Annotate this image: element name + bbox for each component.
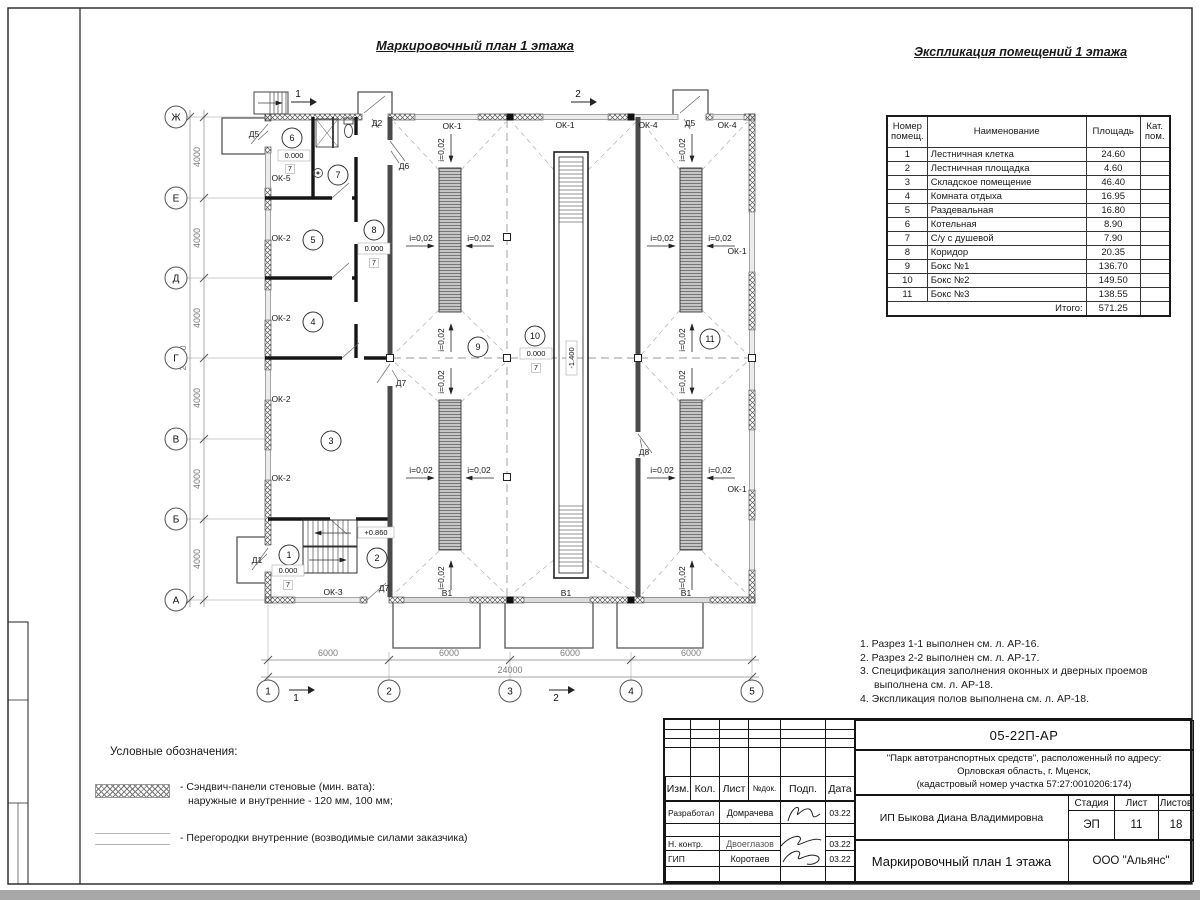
section-number: 2 xyxy=(575,89,581,100)
gate-mark: В1 xyxy=(442,588,453,598)
section-number: 1 xyxy=(295,89,301,100)
cell-num: 7 xyxy=(887,232,927,246)
block-walls xyxy=(390,117,638,597)
window-mark: ОК-1 xyxy=(555,120,574,130)
title-block: Изм. Кол. Лист №док. Подп. Дата Разработ… xyxy=(663,718,1192,884)
note-item: 2. Разрез 2-2 выполнен см. л. АР-17. xyxy=(860,652,1190,666)
door-mark: Д8 xyxy=(639,447,650,457)
cell-cat xyxy=(1140,148,1170,162)
room-number: 10 xyxy=(530,331,540,341)
name-developer: Домрачева xyxy=(719,801,781,824)
cell-name: Котельная xyxy=(927,218,1086,232)
door-mark: Д7 xyxy=(396,378,407,388)
room-number: 1 xyxy=(286,550,291,560)
col-header-name: Наименование xyxy=(927,116,1086,148)
cell-num: 8 xyxy=(887,246,927,260)
table-total-row: Итого: 571.25 xyxy=(887,302,1170,317)
col-list: Лист xyxy=(719,776,749,801)
sheet-header: Лист xyxy=(1114,795,1159,811)
table-row: 5Раздевальная16.80 xyxy=(887,204,1170,218)
total-label: Итого: xyxy=(887,302,1086,317)
empty-row xyxy=(719,823,781,837)
name-ncontrol: Двоеглазов xyxy=(719,836,781,851)
cell-cat xyxy=(1140,190,1170,204)
entrance-stair xyxy=(254,92,288,114)
axis-label: Е xyxy=(173,194,180,205)
floor-type-tag: 7 xyxy=(372,260,376,267)
cell-area: 20.35 xyxy=(1086,246,1140,260)
door-mark: Д2 xyxy=(372,118,383,128)
cell-name: Складское помещение xyxy=(927,176,1086,190)
cell-name: Бокс №2 xyxy=(927,274,1086,288)
role-gip: ГИП xyxy=(665,850,720,867)
cell-area: 46.40 xyxy=(1086,176,1140,190)
signature-scribble xyxy=(777,832,829,870)
cell-num: 10 xyxy=(887,274,927,288)
cell-area: 136.70 xyxy=(1086,260,1140,274)
drawing-title: Маркировочный план 1 этажа xyxy=(854,840,1069,882)
slope-label: i=0,02 xyxy=(436,566,446,590)
room-number: 5 xyxy=(310,235,315,245)
room-number: 9 xyxy=(475,342,480,352)
cell-name: Лестничная клетка xyxy=(927,148,1086,162)
empty-row xyxy=(825,866,855,882)
window-mark: ОК-4 xyxy=(717,120,736,130)
axis-label: 1 xyxy=(265,687,271,698)
col-izm: Изм. xyxy=(665,776,691,801)
col-header-cat: Кат. пом. xyxy=(1140,116,1170,148)
empty-row xyxy=(665,866,720,882)
stage-header: Стадия xyxy=(1068,795,1115,811)
dimensions-left: 4000 4000 4000 4000 4000 4000 24000 xyxy=(178,110,265,607)
cell-cat xyxy=(1140,246,1170,260)
col-kol: Кол. xyxy=(690,776,720,801)
axis-label: 2 xyxy=(386,687,392,698)
dim-label: 4000 xyxy=(192,228,202,248)
room-number: 2 xyxy=(374,553,379,563)
cell-num: 2 xyxy=(887,162,927,176)
empty-row xyxy=(825,823,855,837)
cell-cat xyxy=(1140,218,1170,232)
floor-type-tag: 7 xyxy=(286,582,290,589)
cell-area: 16.80 xyxy=(1086,204,1140,218)
total-area: 571.25 xyxy=(1086,302,1140,317)
floor-type-tag: 7 xyxy=(288,166,292,173)
cell-num: 6 xyxy=(887,218,927,232)
dim-label: 4000 xyxy=(192,469,202,489)
note-item: 3. Спецификация заполнения оконных и две… xyxy=(860,665,1190,692)
axis-label: Д xyxy=(173,274,180,285)
level-mark: 0.000 xyxy=(527,349,546,358)
empty-row xyxy=(665,823,720,837)
cell-num: 9 xyxy=(887,260,927,274)
legend-item-2: - Перегородки внутренние (возводимые сил… xyxy=(180,832,468,846)
date-gip: 03.22 xyxy=(825,850,855,867)
doc-number: 05-22П-АР xyxy=(854,720,1194,750)
col-header-number: Номер помещ. xyxy=(887,116,927,148)
empty-row xyxy=(780,866,826,882)
axis-col-bubbles: 1 2 3 4 5 xyxy=(257,680,763,702)
table-row: 9Бокс №1136.70 xyxy=(887,260,1170,274)
organization-name: ООО "Альянс" xyxy=(1068,840,1194,882)
window-mark: ОК-3 xyxy=(323,587,342,597)
axis-label: Ж xyxy=(171,113,181,124)
plan-title: Маркировочный план 1 этажа xyxy=(330,38,620,53)
dimensions-bottom: 6000 6000 6000 6000 24000 xyxy=(261,605,759,681)
axis-label: В xyxy=(173,435,180,446)
cell-area: 8.90 xyxy=(1086,218,1140,232)
legend-swatch-sandwich-panel xyxy=(95,784,170,798)
cell-cat xyxy=(1140,232,1170,246)
legend-item-1-line1: - Сэндвич-панели стеновые (мин. вата): xyxy=(180,781,375,795)
dim-label: 4000 xyxy=(192,147,202,167)
room-schedule-table: Номер помещ. Наименование Площадь Кат. п… xyxy=(886,115,1171,317)
sheets-header: Листов xyxy=(1158,795,1194,811)
project-name-cell: "Парк автотранспортных средств", располо… xyxy=(854,750,1194,795)
dim-label: 6000 xyxy=(560,648,580,658)
window-mark: ОК-2 xyxy=(271,473,290,483)
room-numbers: 1 2 3 4 5 6 7 8 9 10 11 xyxy=(286,133,714,563)
cell-area: 7.90 xyxy=(1086,232,1140,246)
table-row: 7С/у с душевой7.90 xyxy=(887,232,1170,246)
col-ndok: №док. xyxy=(748,776,781,801)
cell-num: 11 xyxy=(887,288,927,302)
door-mark: Д5 xyxy=(685,118,696,128)
project-line-1: "Парк автотранспортных средств", располо… xyxy=(887,753,1162,766)
slope-label: i=0,02 xyxy=(650,233,674,243)
room-number: 3 xyxy=(328,436,333,446)
door-mark: Д7 xyxy=(379,583,390,593)
cell-area: 16.95 xyxy=(1086,190,1140,204)
slope-label: i=0,02 xyxy=(409,465,433,475)
gate-mark: В1 xyxy=(561,588,572,598)
axis-label: 5 xyxy=(749,687,755,698)
porches xyxy=(222,90,708,648)
slope-label: i=0,02 xyxy=(677,138,687,162)
level-mark: +0.860 xyxy=(364,528,387,537)
table-row: 4Комната отдыха16.95 xyxy=(887,190,1170,204)
door-mark: Д1 xyxy=(252,555,263,565)
table-row: 10Бокс №2149.50 xyxy=(887,274,1170,288)
dim-label: 24000 xyxy=(497,665,522,675)
axis-label: 4 xyxy=(628,687,634,698)
slope-label: i=0,02 xyxy=(708,465,732,475)
slope-label: i=0,02 xyxy=(436,328,446,352)
axis-label: А xyxy=(173,596,180,607)
dim-label: 6000 xyxy=(439,648,459,658)
cell-name: Бокс №3 xyxy=(927,288,1086,302)
cell-cat xyxy=(1140,162,1170,176)
axis-row-bubbles: Ж Е Д Г В Б А xyxy=(165,106,187,611)
table-row: 6Котельная8.90 xyxy=(887,218,1170,232)
section-number: 1 xyxy=(293,693,299,704)
note-item: 4. Экспликация полов выполнена см. л. АР… xyxy=(860,693,1190,707)
cell-cat xyxy=(1140,302,1170,317)
project-line-3: (кадастровый номер участка 57:27:0010206… xyxy=(887,779,1162,792)
room-number: 8 xyxy=(371,225,376,235)
gate-mark: В1 xyxy=(681,588,692,598)
table-title: Экспликация помещений 1 этажа xyxy=(893,45,1148,59)
window-mark: ОК-1 xyxy=(727,484,746,494)
window-mark: ОК-2 xyxy=(271,233,290,243)
cell-cat xyxy=(1140,274,1170,288)
table-header-row: Номер помещ. Наименование Площадь Кат. п… xyxy=(887,116,1170,148)
slope-label: i=0,02 xyxy=(467,465,491,475)
role-ncontrol: Н. контр. xyxy=(665,836,720,851)
slope-label: i=0,02 xyxy=(409,233,433,243)
table-row: 8Коридор20.35 xyxy=(887,246,1170,260)
dim-label: 6000 xyxy=(681,648,701,658)
cell-area: 149.50 xyxy=(1086,274,1140,288)
room-number: 11 xyxy=(705,334,714,344)
cell-name: Коридор xyxy=(927,246,1086,260)
axis-label: 3 xyxy=(507,687,513,698)
dim-label: 4000 xyxy=(192,549,202,569)
date-ncontrol: 03.22 xyxy=(825,836,855,851)
stage-value: ЭП xyxy=(1068,810,1115,840)
cell-num: 1 xyxy=(887,148,927,162)
slope-label: i=0,02 xyxy=(677,328,687,352)
level-mark: -1.400 xyxy=(567,347,576,368)
col-data: Дата xyxy=(825,776,855,801)
dim-label: 6000 xyxy=(318,648,338,658)
slope-label: i=0,02 xyxy=(467,233,491,243)
project-line-2: Орловская область, г. Мценск, xyxy=(887,766,1162,779)
role-developer: Разработал xyxy=(665,801,720,824)
slope-label: i=0,02 xyxy=(650,465,674,475)
cell-cat xyxy=(1140,176,1170,190)
window-mark: ОК-1 xyxy=(442,121,461,131)
cell-cat xyxy=(1140,260,1170,274)
window-mark: ОК-5 xyxy=(271,173,290,183)
slope-label: i=0,02 xyxy=(436,370,446,394)
signature-developer xyxy=(780,801,826,824)
room-number: 7 xyxy=(335,170,340,180)
note-item: 1. Разрез 1-1 выполнен см. л. АР-16. xyxy=(860,638,1190,652)
cell-area: 24.60 xyxy=(1086,148,1140,162)
room-number: 4 xyxy=(310,317,315,327)
slope-label: i=0,02 xyxy=(436,138,446,162)
level-mark: 0.000 xyxy=(365,244,384,253)
axis-label: Б xyxy=(173,515,180,526)
legend-item-1-line2: наружные и внутренние - 120 мм, 100 мм; xyxy=(188,795,393,809)
col-header-area: Площадь xyxy=(1086,116,1140,148)
cell-area: 4.60 xyxy=(1086,162,1140,176)
door-mark: Д5 xyxy=(249,129,260,139)
empty-row xyxy=(719,866,781,882)
legend-title: Условные обозначения: xyxy=(110,746,237,758)
cell-cat xyxy=(1140,288,1170,302)
cell-area: 138.55 xyxy=(1086,288,1140,302)
cell-num: 5 xyxy=(887,204,927,218)
client-name: ИП Быкова Диана Владимировна xyxy=(854,795,1069,840)
window-mark: ОК-2 xyxy=(271,394,290,404)
level-mark: 0.000 xyxy=(285,151,304,160)
room-number: 6 xyxy=(289,133,294,143)
cell-cat xyxy=(1140,204,1170,218)
legend-swatch-partition xyxy=(95,833,170,845)
cell-num: 4 xyxy=(887,190,927,204)
slope-label: i=0,02 xyxy=(677,370,687,394)
sheet-value: 11 xyxy=(1114,810,1159,840)
cell-name: Бокс №1 xyxy=(927,260,1086,274)
cell-name: Раздевальная xyxy=(927,204,1086,218)
window-mark: ОК-2 xyxy=(271,313,290,323)
date-developer: 03.22 xyxy=(825,801,855,824)
col-podp: Подп. xyxy=(780,776,826,801)
table-row: 3Складское помещение46.40 xyxy=(887,176,1170,190)
window-mark: ОК-1 xyxy=(727,246,746,256)
axis-label: Г xyxy=(173,354,179,365)
dim-label: 4000 xyxy=(192,388,202,408)
table-row: 11Бокс №3138.55 xyxy=(887,288,1170,302)
table-row: 2Лестничная площадка4.60 xyxy=(887,162,1170,176)
dim-label: 4000 xyxy=(192,308,202,328)
level-mark: 0.000 xyxy=(279,566,298,575)
section-number: 2 xyxy=(553,693,559,704)
sheets-value: 18 xyxy=(1158,810,1194,840)
table-row: 1Лестничная клетка24.60 xyxy=(887,148,1170,162)
slope-label: i=0,02 xyxy=(677,566,687,590)
door-mark: Д6 xyxy=(399,161,410,171)
notes-list: 1. Разрез 1-1 выполнен см. л. АР-16. 2. … xyxy=(860,638,1190,706)
slope-label: i=0,02 xyxy=(708,233,732,243)
stairs xyxy=(303,520,357,573)
floor-type-tag: 7 xyxy=(534,365,538,372)
cell-num: 3 xyxy=(887,176,927,190)
name-gip: Коротаев xyxy=(719,850,781,867)
cell-name: С/у с душевой xyxy=(927,232,1086,246)
cell-name: Комната отдыха xyxy=(927,190,1086,204)
cell-name: Лестничная площадка xyxy=(927,162,1086,176)
window-mark: ОК-4 xyxy=(638,120,657,130)
